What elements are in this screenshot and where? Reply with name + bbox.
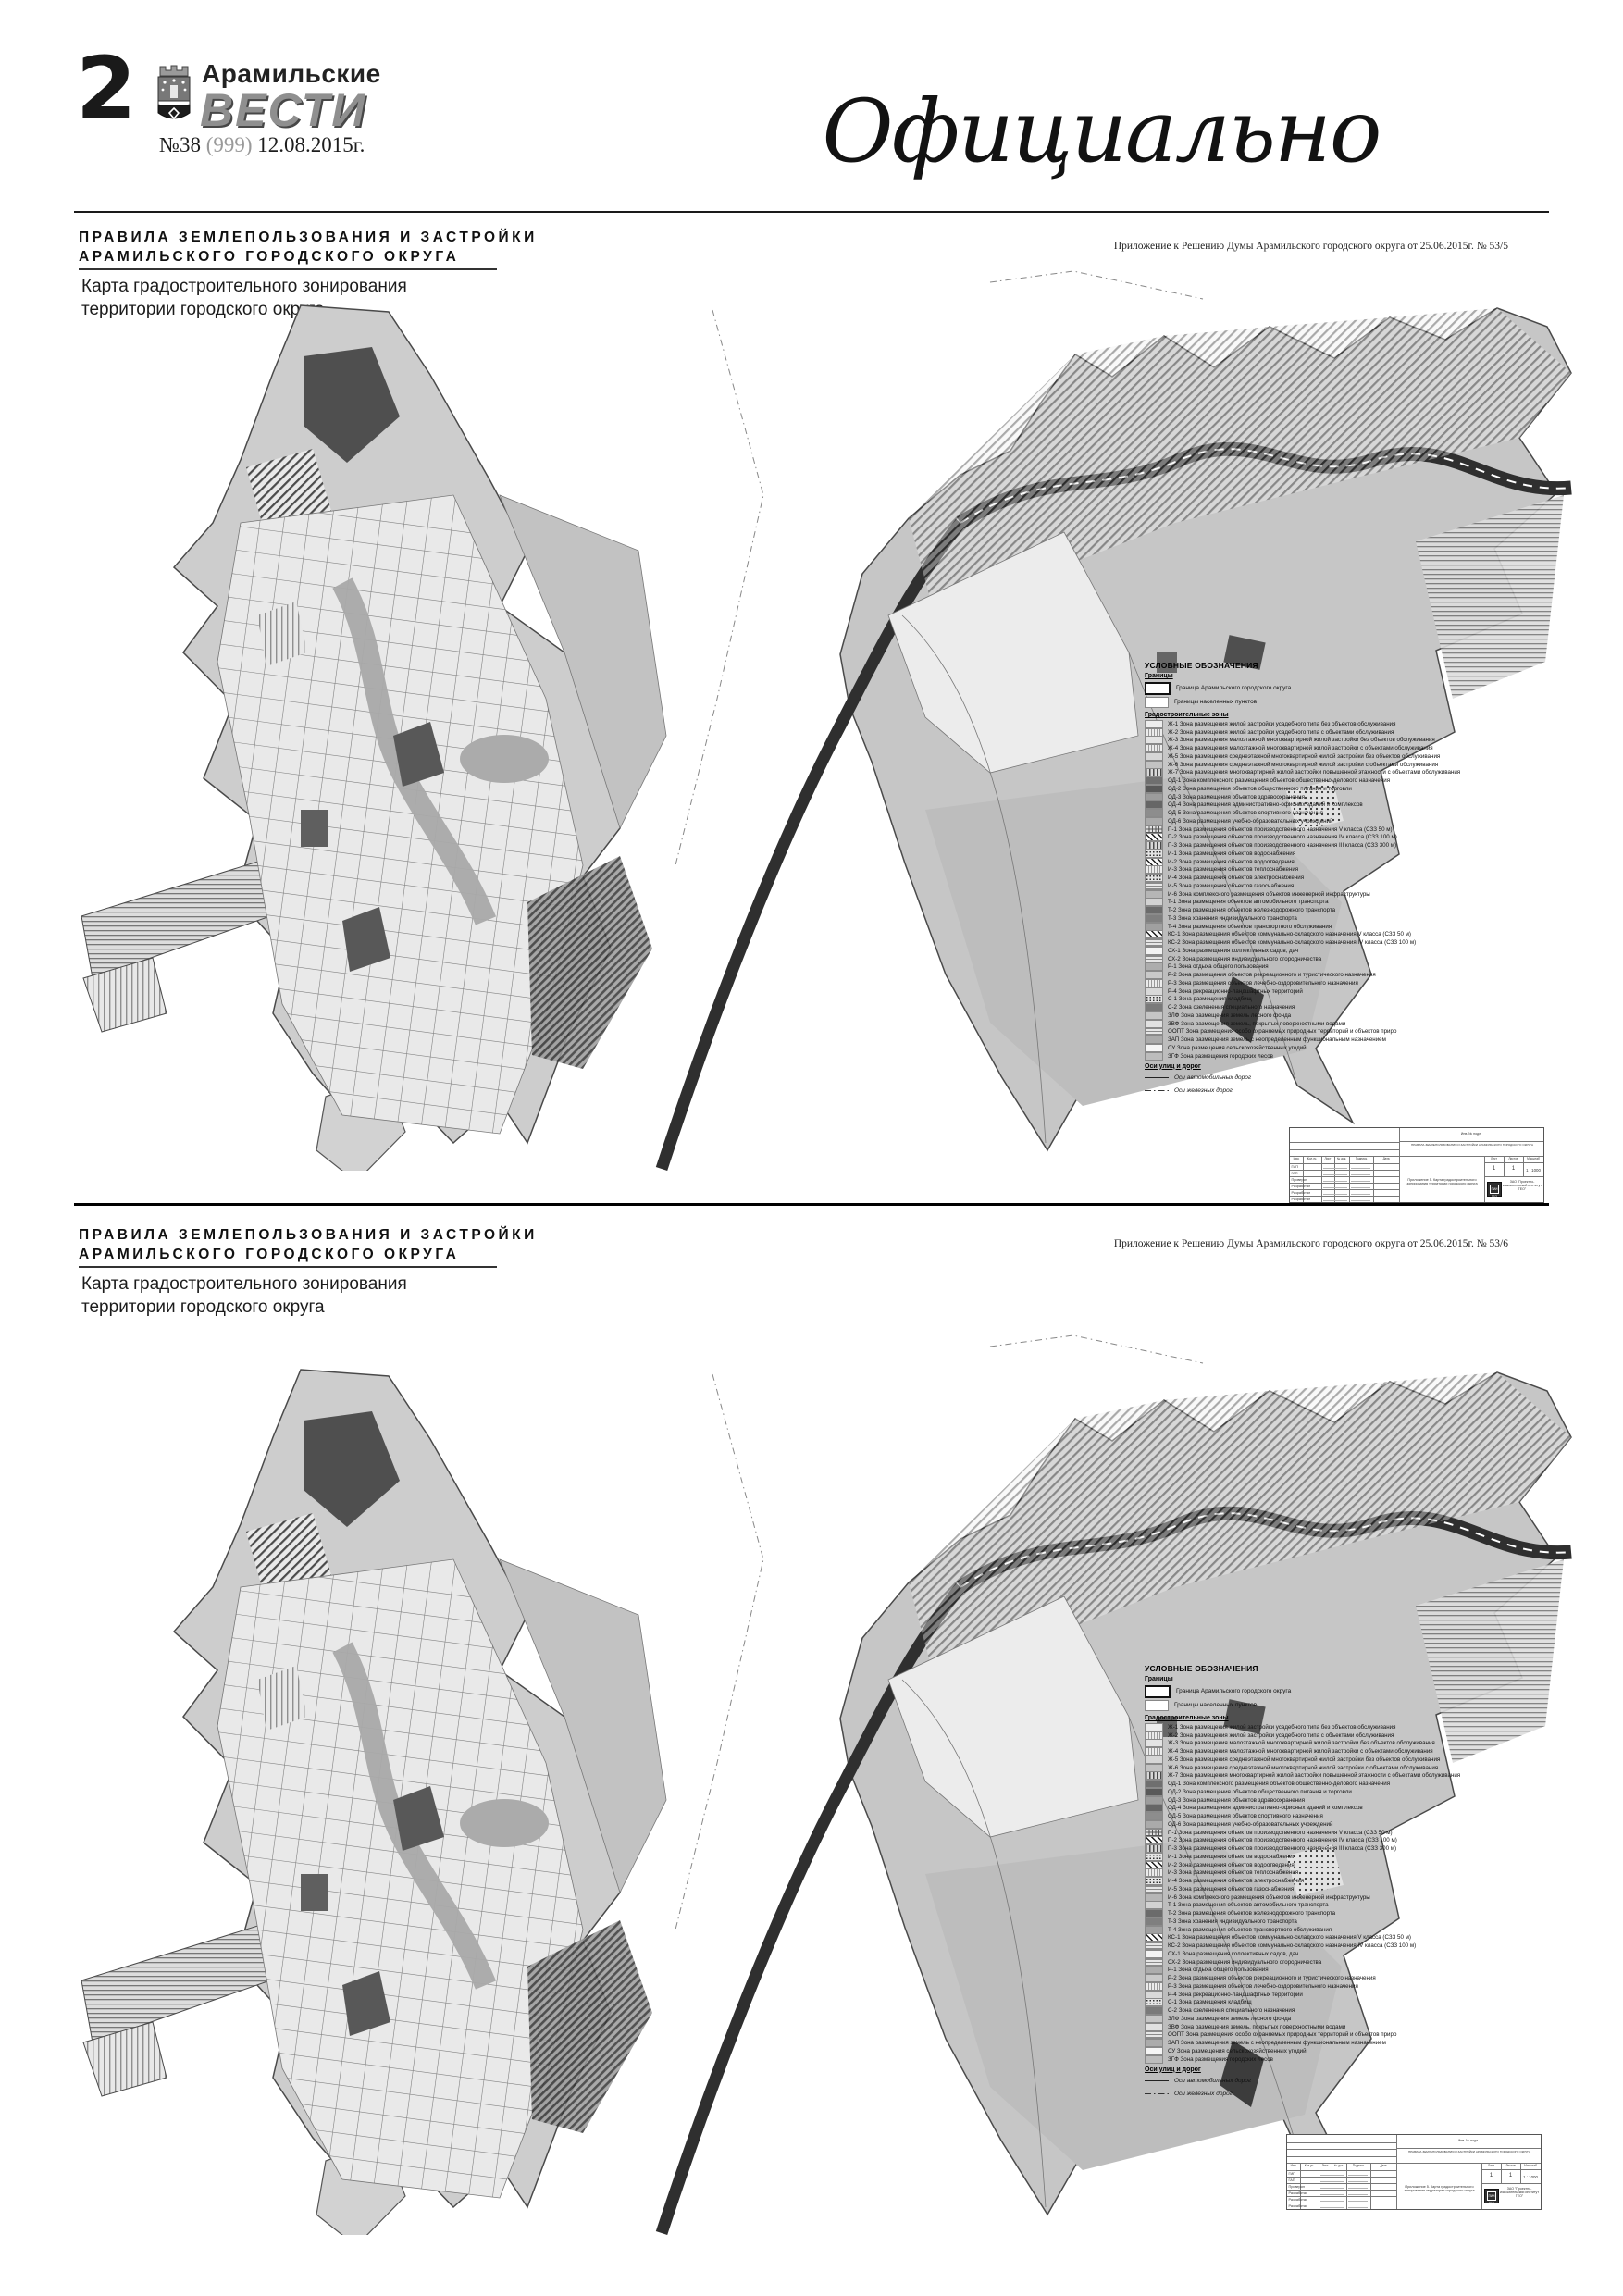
stamp-signature-bar: [1348, 2188, 1368, 2189]
legend-zone-row: И-1 Зона размещения объектов водоснабжен…: [1145, 850, 1544, 858]
zone-label: И-4 Зона размещения объектов электроснаб…: [1168, 1878, 1304, 1884]
legend-zone-row: Т-4 Зона размещения объектов транспортно…: [1145, 1926, 1544, 1934]
stamp-col-label: Лист: [1321, 1158, 1334, 1161]
stamp-caption: Приложение 5. Карта градостроительного з…: [1402, 1178, 1482, 1186]
axis-line-swatch: [1145, 1077, 1169, 1078]
zone-swatch: [1145, 1780, 1163, 1788]
legend-zone-row: Ж-1 Зона размещения жилой застройки усад…: [1145, 720, 1544, 728]
zone-swatch: [1145, 1796, 1163, 1805]
zone-label: П-2 Зона размещения объектов производств…: [1168, 834, 1397, 840]
stamp-signature-bar: [1351, 1168, 1370, 1169]
map-legend-2: УСЛОВНЫЕ ОБОЗНАЧЕНИЯГраницыГраница Арами…: [1145, 1664, 1544, 2101]
zone-label: С-1 Зона размещения кладбищ: [1168, 1999, 1252, 2005]
zone-label: И-5 Зона размещения объектов газоснабжен…: [1168, 883, 1294, 889]
legend-zone-row: Р-2 Зона размещения объектов рекреационн…: [1145, 1974, 1544, 1982]
stamp-sheets-value: 1: [1501, 2173, 1520, 2179]
section-title-rule: [79, 1266, 497, 1268]
zone-swatch: [1145, 1044, 1163, 1052]
stamp-signature-bar: [1320, 2201, 1344, 2202]
legend-zone-row: ООПТ Зона размещения особо охраняемых пр…: [1145, 2031, 1544, 2040]
stamp-col-label: Кол.уч.: [1300, 2165, 1319, 2168]
zone-label: П-2 Зона размещения объектов производств…: [1168, 1837, 1397, 1843]
legend-zone-row: И-4 Зона размещения объектов электроснаб…: [1145, 874, 1544, 882]
zone-swatch: [1145, 1844, 1163, 1853]
zone-swatch: [1145, 793, 1163, 801]
stamp-signature-bar: [1348, 2181, 1368, 2182]
zone-swatch: [1145, 979, 1163, 987]
zone-swatch: [1145, 776, 1163, 785]
stamp-role: Разработал: [1292, 1198, 1321, 1201]
zone-label: ОД-3 Зона размещения объектов здравоохра…: [1168, 794, 1305, 800]
zone-swatch: [1145, 833, 1163, 841]
legend-zone-row: Ж-6 Зона размещения среднеэтажной многок…: [1145, 761, 1544, 769]
legend-zone-row: Ж-4 Зона размещения малоэтажной многоква…: [1145, 1747, 1544, 1756]
axis-label: Оси железных дорог: [1174, 2091, 1233, 2097]
legend-group-axes: Оси улиц и дорог: [1145, 1063, 1544, 1070]
stamp-org-logo-icon: ПИИ ГЕО: [1484, 2189, 1499, 2203]
legend-zone-row: ОД-2 Зона размещения объектов общественн…: [1145, 785, 1544, 793]
zone-label: И-6 Зона комплексного размещения объекто…: [1168, 1894, 1370, 1901]
legend-zone-row: СУ Зона размещения сельскохозяйственных …: [1145, 2047, 1544, 2055]
zone-swatch: [1145, 1723, 1163, 1731]
zone-swatch: [1145, 1991, 1163, 1999]
stamp-line: [1290, 1149, 1399, 1150]
zone-swatch: [1145, 1982, 1163, 1991]
legend-zone-row: ОД-5 Зона размещения объектов спортивног…: [1145, 809, 1544, 817]
axis-label: Оси автомобильных дорог: [1174, 1074, 1251, 1081]
legend-boundary-row: Границы населенных пунктов: [1145, 695, 1544, 709]
zone-swatch: [1145, 1942, 1163, 1950]
zone-label: Ж-5 Зона размещения среднеэтажной многок…: [1168, 1756, 1440, 1763]
stamp-signature-bar: [1348, 2201, 1368, 2202]
issue-date: 12.08.2015г.: [257, 133, 365, 156]
zone-label: ОД-4 Зона размещения административно-офи…: [1168, 1805, 1363, 1811]
axis-line-swatch: [1145, 1090, 1169, 1091]
legend-boundary-row: Границы населенных пунктов: [1145, 1698, 1544, 1712]
stamp-line: [1287, 2142, 1396, 2143]
legend-zone-row: ОД-1 Зона комплексного размещения объект…: [1145, 1780, 1544, 1788]
legend-zone-row: Т-3 Зона хранения индивидуального трансп…: [1145, 1917, 1544, 1926]
zone-swatch: [1145, 1998, 1163, 2006]
legend-zone-row: Ж-5 Зона размещения среднеэтажной многок…: [1145, 752, 1544, 761]
legend-zone-row: ОД-5 Зона размещения объектов спортивног…: [1145, 1812, 1544, 1820]
boundary-label: Границы населенных пунктов: [1174, 699, 1257, 705]
coat-of-arms-icon: [155, 63, 192, 122]
zone-label: Ж-6 Зона размещения среднеэтажной многок…: [1168, 762, 1438, 768]
legend-group-boundaries: Границы: [1145, 1676, 1544, 1682]
stamp-signature-bar: [1323, 1181, 1347, 1182]
stamp-col-label: Дата: [1370, 2165, 1396, 2168]
zone-label: Т-3 Зона хранения индивидуального трансп…: [1168, 1918, 1297, 1925]
stamp-scale-label: Масштаб: [1523, 1158, 1543, 1161]
legend-zone-row: СХ-2 Зона размещения индивидуального ого…: [1145, 955, 1544, 963]
zone-swatch: [1145, 906, 1163, 914]
zone-swatch: [1145, 720, 1163, 728]
zone-swatch: [1145, 1829, 1163, 1837]
zone-label: Т-4 Зона размещения объектов транспортно…: [1168, 924, 1332, 930]
stamp-signature-bar: [1348, 2194, 1368, 2195]
stamp-role: ГАП: [1292, 1172, 1321, 1175]
legend-zone-row: И-6 Зона комплексного размещения объекто…: [1145, 890, 1544, 899]
stamp-role: Разработал: [1289, 2191, 1319, 2195]
zone-swatch: [1145, 1885, 1163, 1893]
legend-zone-row: КС-1 Зона размещения объектов коммунальн…: [1145, 1934, 1544, 1942]
zone-label: КС-1 Зона размещения объектов коммунальн…: [1168, 931, 1411, 937]
boundary-swatch: [1145, 697, 1169, 708]
legend-zone-row: П-1 Зона размещения объектов производств…: [1145, 825, 1544, 834]
zone-swatch: [1145, 785, 1163, 793]
zone-label: С-1 Зона размещения кладбищ: [1168, 996, 1252, 1002]
zone-label: КС-2 Зона размещения объектов коммунальн…: [1168, 939, 1416, 946]
boundary-swatch: [1145, 1685, 1171, 1698]
legend-zone-row: ОД-6 Зона размещения учебно-образователь…: [1145, 1820, 1544, 1829]
zone-label: Т-2 Зона размещения объектов железнодоро…: [1168, 1910, 1335, 1917]
legend-zone-row: ОД-1 Зона комплексного размещения объект…: [1145, 776, 1544, 785]
zone-swatch: [1145, 825, 1163, 834]
zone-label: ЗВФ Зона размещения земель, покрытых пов…: [1168, 2024, 1345, 2030]
legend-zone-row: ЗВФ Зона размещения земель, покрытых пов…: [1145, 2023, 1544, 2031]
stamp-line: [1396, 2135, 1397, 2209]
stamp-signature-bar: [1323, 1200, 1347, 1201]
axis-line-swatch: [1145, 2093, 1169, 2094]
axis-label: Оси железных дорог: [1174, 1087, 1233, 1094]
legend-zone-row: Ж-7 Зона размещения многоквартирной жило…: [1145, 1772, 1544, 1781]
stamp-role: Разработал: [1292, 1191, 1321, 1195]
stamp-caption: Приложение 5. Карта градостроительного з…: [1399, 2185, 1480, 2193]
zone-swatch: [1145, 2030, 1163, 2039]
legend-boundary-row: Граница Арамильского городского округа: [1145, 1684, 1544, 1698]
legend-zone-row: И-2 Зона размещения объектов водоотведен…: [1145, 858, 1544, 866]
zone-label: ЗЛФ Зона размещения земель лесного фонда: [1168, 1012, 1291, 1019]
legend-group-boundaries: Границы: [1145, 673, 1544, 679]
zone-swatch: [1145, 1812, 1163, 1820]
zone-label: СХ-2 Зона размещения индивидуального ого…: [1168, 1959, 1321, 1966]
legend-zone-row: ОД-3 Зона размещения объектов здравоохра…: [1145, 793, 1544, 801]
zone-swatch: [1145, 1966, 1163, 1974]
stamp-org-logo-text: ПИИ ГЕО: [1487, 2191, 1496, 2201]
stamp-line: [1484, 1176, 1543, 1177]
issue-paren: (999): [206, 133, 253, 156]
zone-label: ЗГФ Зона размещения городских лесов: [1168, 1053, 1273, 1060]
zone-label: И-3 Зона размещения объектов теплоснабже…: [1168, 1869, 1298, 1876]
legend-zone-row: С-1 Зона размещения кладбищ: [1145, 996, 1544, 1004]
zone-label: ООПТ Зона размещения особо охраняемых пр…: [1168, 1028, 1396, 1035]
legend-zone-row: Ж-6 Зона размещения среднеэтажной многок…: [1145, 1764, 1544, 1772]
stamp-col-label: Дата: [1373, 1158, 1399, 1161]
zone-swatch: [1145, 914, 1163, 923]
zone-label: И-2 Зона размещения объектов водоотведен…: [1168, 1862, 1295, 1868]
stamp-org-logo-icon: ПИИ ГЕО: [1487, 1182, 1502, 1197]
legend-zone-row: ОД-2 Зона размещения объектов общественн…: [1145, 1788, 1544, 1796]
zone-swatch: [1145, 1917, 1163, 1926]
legend-zone-row: П-2 Зона размещения объектов производств…: [1145, 1837, 1544, 1845]
legend-zone-row: СУ Зона размещения сельскохозяйственных …: [1145, 1044, 1544, 1052]
stamp-col-label: Кол.уч.: [1303, 1158, 1321, 1161]
zone-label: Ж-1 Зона размещения жилой застройки усад…: [1168, 1724, 1395, 1731]
legend-zone-row: И-2 Зона размещения объектов водоотведен…: [1145, 1861, 1544, 1869]
zone-swatch: [1145, 817, 1163, 825]
zone-swatch: [1145, 1011, 1163, 1020]
zone-label: Р-1 Зона отдыха общего пользования: [1168, 963, 1269, 970]
zone-label: ОД-6 Зона размещения учебно-образователь…: [1168, 818, 1332, 825]
zone-swatch: [1145, 841, 1163, 850]
zone-swatch: [1145, 2055, 1163, 2064]
zone-label: ООПТ Зона размещения особо охраняемых пр…: [1168, 2031, 1396, 2038]
zone-swatch: [1145, 1950, 1163, 1958]
stamp-role: ГИП: [1292, 1165, 1321, 1169]
stamp-doc-title: ПРАВИЛА ЗЕМЛЕПОЛЬЗОВАНИЯ И ЗАСТРОЙКИ АРА…: [1400, 2151, 1539, 2154]
stamp-inventory-label: Инв. № подл.: [1398, 2139, 1539, 2142]
zone-label: ОД-2 Зона размещения объектов общественн…: [1168, 1789, 1352, 1795]
zone-swatch: [1145, 768, 1163, 776]
zone-swatch: [1145, 1877, 1163, 1885]
legend-boundary-row: Граница Арамильского городского округа: [1145, 681, 1544, 695]
stamp-line: [1396, 2148, 1541, 2149]
stamp-signature-bar: [1348, 2207, 1368, 2208]
legend-zone-row: И-3 Зона размещения объектов теплоснабже…: [1145, 1869, 1544, 1878]
zone-label: И-3 Зона размещения объектов теплоснабже…: [1168, 866, 1298, 873]
stamp-signature-bar: [1348, 2175, 1368, 2176]
legend-zone-row: Ж-3 Зона размещения малоэтажной многоква…: [1145, 1740, 1544, 1748]
zone-label: Ж-3 Зона размещения малоэтажной многоква…: [1168, 1740, 1435, 1746]
legend-zone-row: СХ-2 Зона размещения индивидуального ого…: [1145, 1958, 1544, 1967]
zone-swatch: [1145, 858, 1163, 866]
boundary-label: Граница Арамильского городского округа: [1176, 685, 1291, 691]
newspaper-name: ВЕСТИ: [200, 83, 366, 137]
zone-label: Ж-2 Зона размещения жилой застройки усад…: [1168, 729, 1394, 736]
zone-label: ОД-6 Зона размещения учебно-образователь…: [1168, 1821, 1332, 1828]
zone-swatch: [1145, 890, 1163, 899]
zone-label: Т-1 Зона размещения объектов автомобильн…: [1168, 1902, 1329, 1908]
zone-label: Т-2 Зона размещения объектов железнодоро…: [1168, 907, 1335, 913]
zone-label: П-3 Зона размещения объектов производств…: [1168, 1845, 1396, 1852]
stamp-signature-bar: [1351, 1174, 1370, 1175]
stamp-line: [1287, 2149, 1396, 2150]
title-block-2: Изм.Кол.уч.Лист№ док.ПодписьДатаГИПГАППр…: [1286, 2134, 1542, 2210]
zone-swatch: [1145, 938, 1163, 947]
zone-label: И-6 Зона комплексного размещения объекто…: [1168, 891, 1370, 898]
zone-label: ОД-1 Зона комплексного размещения объект…: [1168, 1781, 1390, 1787]
zone-label: И-4 Зона размещения объектов электроснаб…: [1168, 875, 1304, 881]
zone-label: ОД-4 Зона размещения административно-офи…: [1168, 801, 1363, 808]
boundary-label: Границы населенных пунктов: [1174, 1702, 1257, 1708]
zone-label: ЗВФ Зона размещения земель, покрытых пов…: [1168, 1021, 1345, 1027]
legend-zone-row: П-2 Зона размещения объектов производств…: [1145, 834, 1544, 842]
zone-swatch: [1145, 1820, 1163, 1829]
legend-zone-row: ЗАП Зона размещения земель с неопределен…: [1145, 2039, 1544, 2047]
zone-label: Ж-1 Зона размещения жилой застройки усад…: [1168, 721, 1395, 727]
legend-zone-row: Р-1 Зона отдыха общего пользования: [1145, 963, 1544, 972]
legend-zone-row: Т-2 Зона размещения объектов железнодоро…: [1145, 1909, 1544, 1917]
legend-zone-row: И-5 Зона размещения объектов газоснабжен…: [1145, 1885, 1544, 1893]
legend-axis-row: Оси железных дорог: [1145, 2088, 1544, 2101]
stamp-org-name: ЗАО "Проектно-изыскательский институт ГЕ…: [1499, 2187, 1540, 2198]
zone-swatch: [1145, 1933, 1163, 1942]
legend-zone-row: Ж-4 Зона размещения малоэтажной многоква…: [1145, 744, 1544, 752]
zone-swatch: [1145, 2047, 1163, 2055]
legend-zone-row: Р-3 Зона размещения объектов лечебно-озд…: [1145, 1982, 1544, 1991]
zone-label: ОД-1 Зона комплексного размещения объект…: [1168, 777, 1390, 784]
title-block-1: Изм.Кол.уч.Лист№ док.ПодписьДатаГИПГАППр…: [1289, 1127, 1544, 1203]
stamp-col-label: Подпись: [1346, 2165, 1370, 2168]
stamp-doc-title: ПРАВИЛА ЗЕМЛЕПОЛЬЗОВАНИЯ И ЗАСТРОЙКИ АРА…: [1403, 1144, 1542, 1148]
stamp-signature-bar: [1320, 2188, 1344, 2189]
zone-label: Ж-5 Зона размещения среднеэтажной многок…: [1168, 753, 1440, 760]
legend-zone-row: Р-4 Зона рекреационно-ландшафтных террит…: [1145, 987, 1544, 996]
legend-zone-row: С-2 Зона озеленения специального назначе…: [1145, 2006, 1544, 2015]
legend-zone-row: ЗГФ Зона размещения городских лесов: [1145, 2055, 1544, 2064]
stamp-col-label: Подпись: [1349, 1158, 1373, 1161]
legend-zone-row: И-4 Зона размещения объектов электроснаб…: [1145, 1877, 1544, 1885]
zone-swatch: [1145, 1836, 1163, 1844]
legend-title: УСЛОВНЫЕ ОБОЗНАЧЕНИЯ: [1145, 1664, 1544, 1673]
legend-axis-row: Оси автомобильных дорог: [1145, 2075, 1544, 2088]
stamp-sheet-label: Лист: [1484, 1158, 1504, 1161]
zone-swatch: [1145, 2006, 1163, 2015]
stamp-col-label: Изм.: [1290, 1158, 1303, 1161]
zone-swatch: [1145, 736, 1163, 744]
section-label-official: Официально: [759, 81, 1443, 182]
issue-number: №38: [159, 133, 201, 156]
zone-label: П-1 Зона размещения объектов производств…: [1168, 1830, 1393, 1836]
legend-zone-row: ОД-6 Зона размещения учебно-образователь…: [1145, 817, 1544, 825]
zone-label: КС-1 Зона размещения объектов коммунальн…: [1168, 1934, 1411, 1941]
issue-line: №38 (999) 12.08.2015г.: [159, 133, 365, 157]
legend-zone-row: Р-1 Зона отдыха общего пользования: [1145, 1967, 1544, 1975]
zone-label: П-1 Зона размещения объектов производств…: [1168, 826, 1393, 833]
zone-swatch: [1145, 1027, 1163, 1036]
zone-label: Т-3 Зона хранения индивидуального трансп…: [1168, 915, 1297, 922]
zone-label: ОД-5 Зона размещения объектов спортивног…: [1168, 1813, 1323, 1819]
zone-swatch: [1145, 1974, 1163, 1982]
legend-zone-row: Т-4 Зона размещения объектов транспортно…: [1145, 923, 1544, 931]
map-legend-1: УСЛОВНЫЕ ОБОЗНАЧЕНИЯГраницыГраница Арами…: [1145, 661, 1544, 1098]
stamp-line: [1481, 2183, 1541, 2184]
stamp-role: Разработал: [1292, 1185, 1321, 1188]
section-divider: [74, 1203, 1549, 1206]
zone-label: СХ-2 Зона размещения индивидуального ого…: [1168, 956, 1321, 962]
stamp-role: Проверил: [1289, 2185, 1319, 2189]
zone-swatch: [1145, 1861, 1163, 1869]
stamp-signature-bar: [1351, 1187, 1370, 1188]
stamp-signature-bar: [1323, 1168, 1347, 1169]
zone-swatch: [1145, 761, 1163, 769]
legend-zone-row: Т-2 Зона размещения объектов железнодоро…: [1145, 906, 1544, 914]
legend-zone-row: КС-1 Зона размещения объектов коммунальн…: [1145, 931, 1544, 939]
stamp-sheets-label: Листов: [1501, 2165, 1520, 2168]
zone-swatch: [1145, 971, 1163, 979]
zone-swatch: [1145, 1868, 1163, 1877]
zone-label: Ж-7 Зона размещения многоквартирной жило…: [1168, 1772, 1460, 1779]
legend-zone-row: СХ-1 Зона размещения коллективных садов,…: [1145, 947, 1544, 955]
zone-swatch: [1145, 1731, 1163, 1740]
legend-zone-row: Т-3 Зона хранения индивидуального трансп…: [1145, 914, 1544, 923]
legend-zone-row: П-3 Зона размещения объектов производств…: [1145, 841, 1544, 850]
zone-label: Т-1 Зона размещения объектов автомобильн…: [1168, 899, 1329, 905]
stamp-scale-value: 1 : 1000: [1523, 1168, 1543, 1173]
zone-label: Р-4 Зона рекреационно-ландшафтных террит…: [1168, 1992, 1303, 1998]
zone-swatch: [1145, 809, 1163, 817]
page-number: 2: [76, 46, 136, 133]
stamp-line: [1481, 2169, 1541, 2170]
legend-zone-row: КС-2 Зона размещения объектов коммунальн…: [1145, 1942, 1544, 1950]
stamp-org-logo-text: ПИИ ГЕО: [1490, 1185, 1499, 1194]
legend-zone-row: ОД-4 Зона размещения административно-офи…: [1145, 1805, 1544, 1813]
stamp-role: Проверил: [1292, 1178, 1321, 1182]
zone-swatch: [1145, 1003, 1163, 1011]
legend-zone-row: ЗВФ Зона размещения земель, покрытых пов…: [1145, 1020, 1544, 1028]
header-rule: [74, 211, 1549, 213]
legend-axis-row: Оси автомобильных дорог: [1145, 1072, 1544, 1085]
legend-zone-row: П-1 Зона размещения объектов производств…: [1145, 1829, 1544, 1837]
zone-swatch: [1145, 1747, 1163, 1756]
stamp-col-label: Лист: [1319, 2165, 1332, 2168]
zone-label: И-5 Зона размещения объектов газоснабжен…: [1168, 1886, 1294, 1893]
annex-reference-2: Приложение к Решению Думы Арамильского г…: [1004, 1238, 1508, 1249]
zone-swatch: [1145, 1036, 1163, 1044]
stamp-signature-bar: [1320, 2194, 1344, 2195]
stamp-line: [1484, 1162, 1543, 1163]
zone-label: Ж-4 Зона размещения малоэтажной многоква…: [1168, 1748, 1433, 1755]
newspaper-logo: Арамильские ВЕСТИ №38 (999) 12.08.2015г.: [155, 59, 489, 161]
zone-label: ЗАП Зона размещения земель с неопределен…: [1168, 1036, 1386, 1043]
zone-label: ЗГФ Зона размещения городских лесов: [1168, 2056, 1273, 2063]
zone-swatch: [1145, 1909, 1163, 1917]
zone-swatch: [1145, 752, 1163, 761]
legend-zone-row: Р-4 Зона рекреационно-ландшафтных террит…: [1145, 1991, 1544, 1999]
zone-swatch: [1145, 1958, 1163, 1967]
zone-swatch: [1145, 1893, 1163, 1902]
zone-label: Ж-2 Зона размещения жилой застройки усад…: [1168, 1732, 1394, 1739]
stamp-role: ГАП: [1289, 2178, 1319, 2182]
legend-zone-row: Р-3 Зона размещения объектов лечебно-озд…: [1145, 979, 1544, 987]
zone-label: ЗЛФ Зона размещения земель лесного фонда: [1168, 2016, 1291, 2022]
zone-swatch: [1145, 882, 1163, 890]
stamp-sheet-label: Лист: [1481, 2165, 1501, 2168]
zone-label: И-2 Зона размещения объектов водоотведен…: [1168, 859, 1295, 865]
stamp-sheet-value: 1: [1484, 1166, 1504, 1173]
stamp-line: [1399, 1128, 1400, 1202]
axis-label: Оси автомобильных дорог: [1174, 2078, 1251, 2084]
zone-label: СУ Зона размещения сельскохозяйственных …: [1168, 2048, 1307, 2054]
zone-label: Т-4 Зона размещения объектов транспортно…: [1168, 1927, 1332, 1933]
stamp-signature-bar: [1351, 1200, 1370, 1201]
legend-zone-row: С-1 Зона размещения кладбищ: [1145, 1999, 1544, 2007]
zone-swatch: [1145, 930, 1163, 938]
zone-label: КС-2 Зона размещения объектов коммунальн…: [1168, 1942, 1416, 1949]
legend-zone-row: Ж-5 Зона размещения среднеэтажной многок…: [1145, 1756, 1544, 1764]
newspaper-page: 2 Арамильские ВЕСТИ №38 (999) 12.08.2015…: [0, 0, 1623, 2296]
legend-zone-row: ЗЛФ Зона размещения земель лесного фонда: [1145, 1011, 1544, 1020]
axis-line-swatch: [1145, 2080, 1169, 2081]
zone-label: Р-3 Зона размещения объектов лечебно-озд…: [1168, 980, 1358, 987]
zone-label: Р-4 Зона рекреационно-ландшафтных террит…: [1168, 988, 1303, 995]
legend-zone-row: Ж-3 Зона размещения малоэтажной многоква…: [1145, 737, 1544, 745]
boundary-swatch: [1145, 1700, 1169, 1711]
stamp-col-label: Изм.: [1287, 2165, 1300, 2168]
legend-zone-row: Ж-2 Зона размещения жилой застройки усад…: [1145, 728, 1544, 737]
stamp-signature-bar: [1351, 1181, 1370, 1182]
zone-swatch: [1145, 1756, 1163, 1764]
zone-swatch: [1145, 1020, 1163, 1028]
stamp-signature-bar: [1320, 2181, 1344, 2182]
zone-swatch: [1145, 1764, 1163, 1772]
stamp-sheets-label: Листов: [1504, 1158, 1523, 1161]
legend-zone-row: Т-1 Зона размещения объектов автомобильн…: [1145, 1902, 1544, 1910]
stamp-signature-bar: [1323, 1187, 1347, 1188]
zone-label: Р-1 Зона отдыха общего пользования: [1168, 1967, 1269, 1973]
legend-group-zones: Градостроительные зоны: [1145, 712, 1544, 718]
